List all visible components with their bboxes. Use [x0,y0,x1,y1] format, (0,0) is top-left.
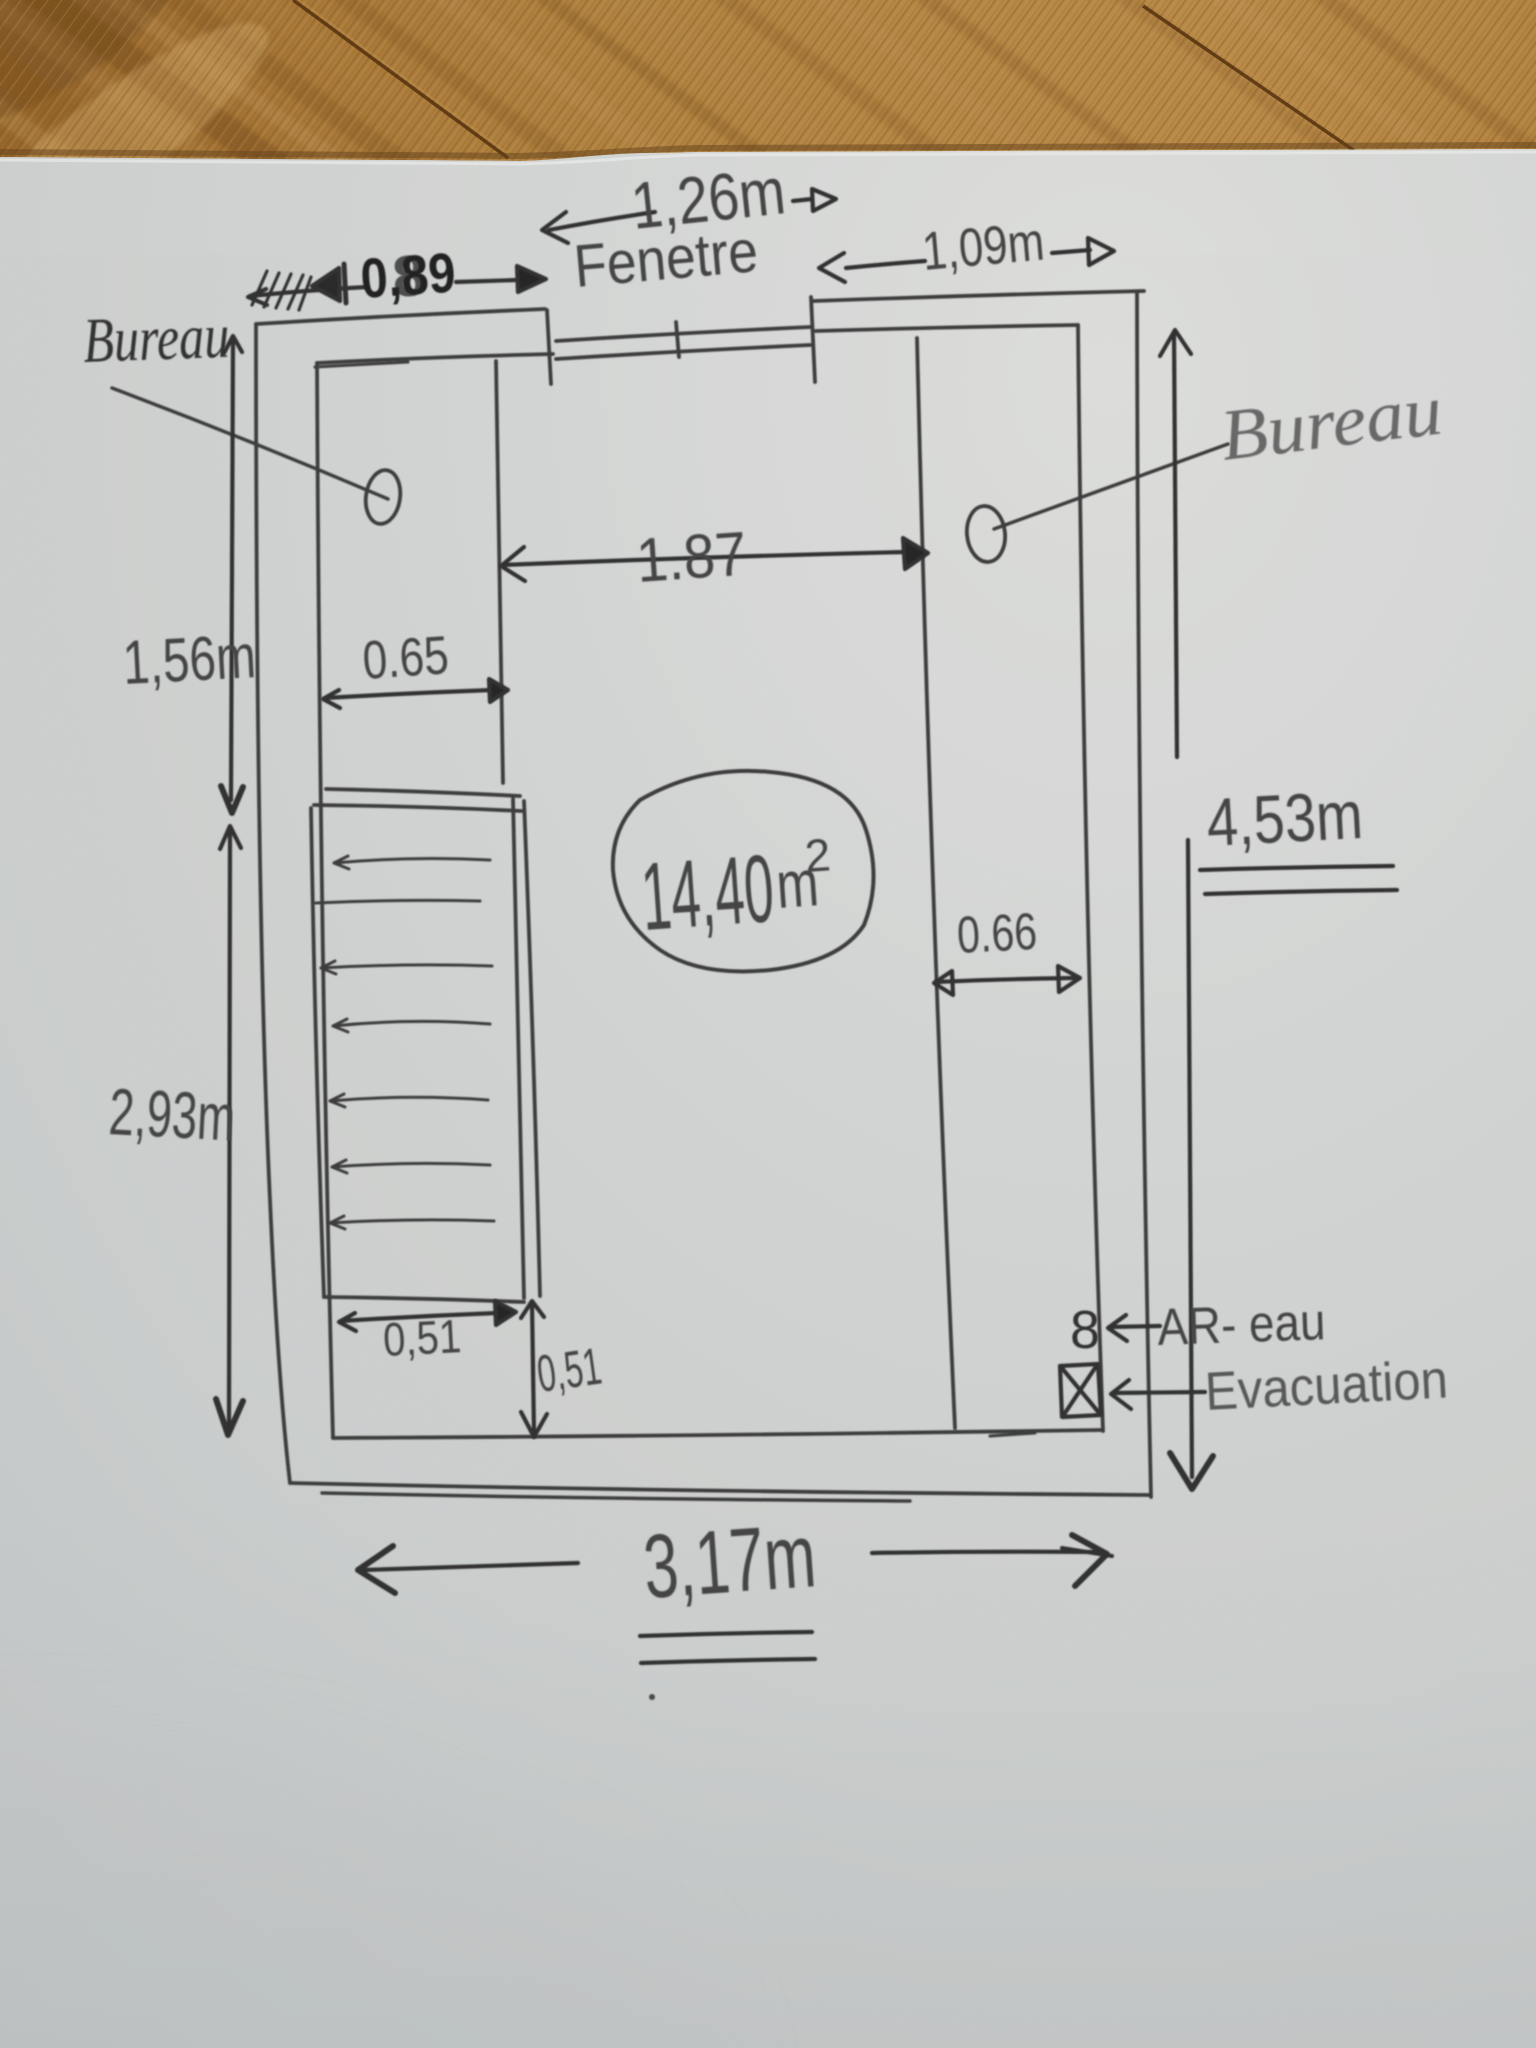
svg-text:8: 8 [1070,1300,1100,1360]
svg-text:1.87: 1.87 [634,519,749,596]
svg-text:Bureau: Bureau [82,300,230,376]
svg-text:1,56m: 1,56m [121,622,257,698]
svg-text:0.66: 0.66 [956,903,1039,965]
svg-text:AR- eau: AR- eau [1156,1293,1326,1357]
svg-text:1,09m: 1,09m [920,212,1047,282]
svg-text:Evacuation: Evacuation [1203,1349,1449,1422]
svg-text:0,51: 0,51 [534,1338,605,1404]
svg-text:2,93m: 2,93m [107,1074,237,1154]
svg-text:8: 8 [390,243,427,310]
svg-text:0.65: 0.65 [361,625,451,691]
svg-text:0,51: 0,51 [382,1309,463,1366]
svg-text:3,17m: 3,17m [640,1506,819,1618]
svg-text:2: 2 [803,828,832,882]
svg-text:14,40: 14,40 [638,835,777,951]
svg-text:4,53m: 4,53m [1205,777,1365,861]
